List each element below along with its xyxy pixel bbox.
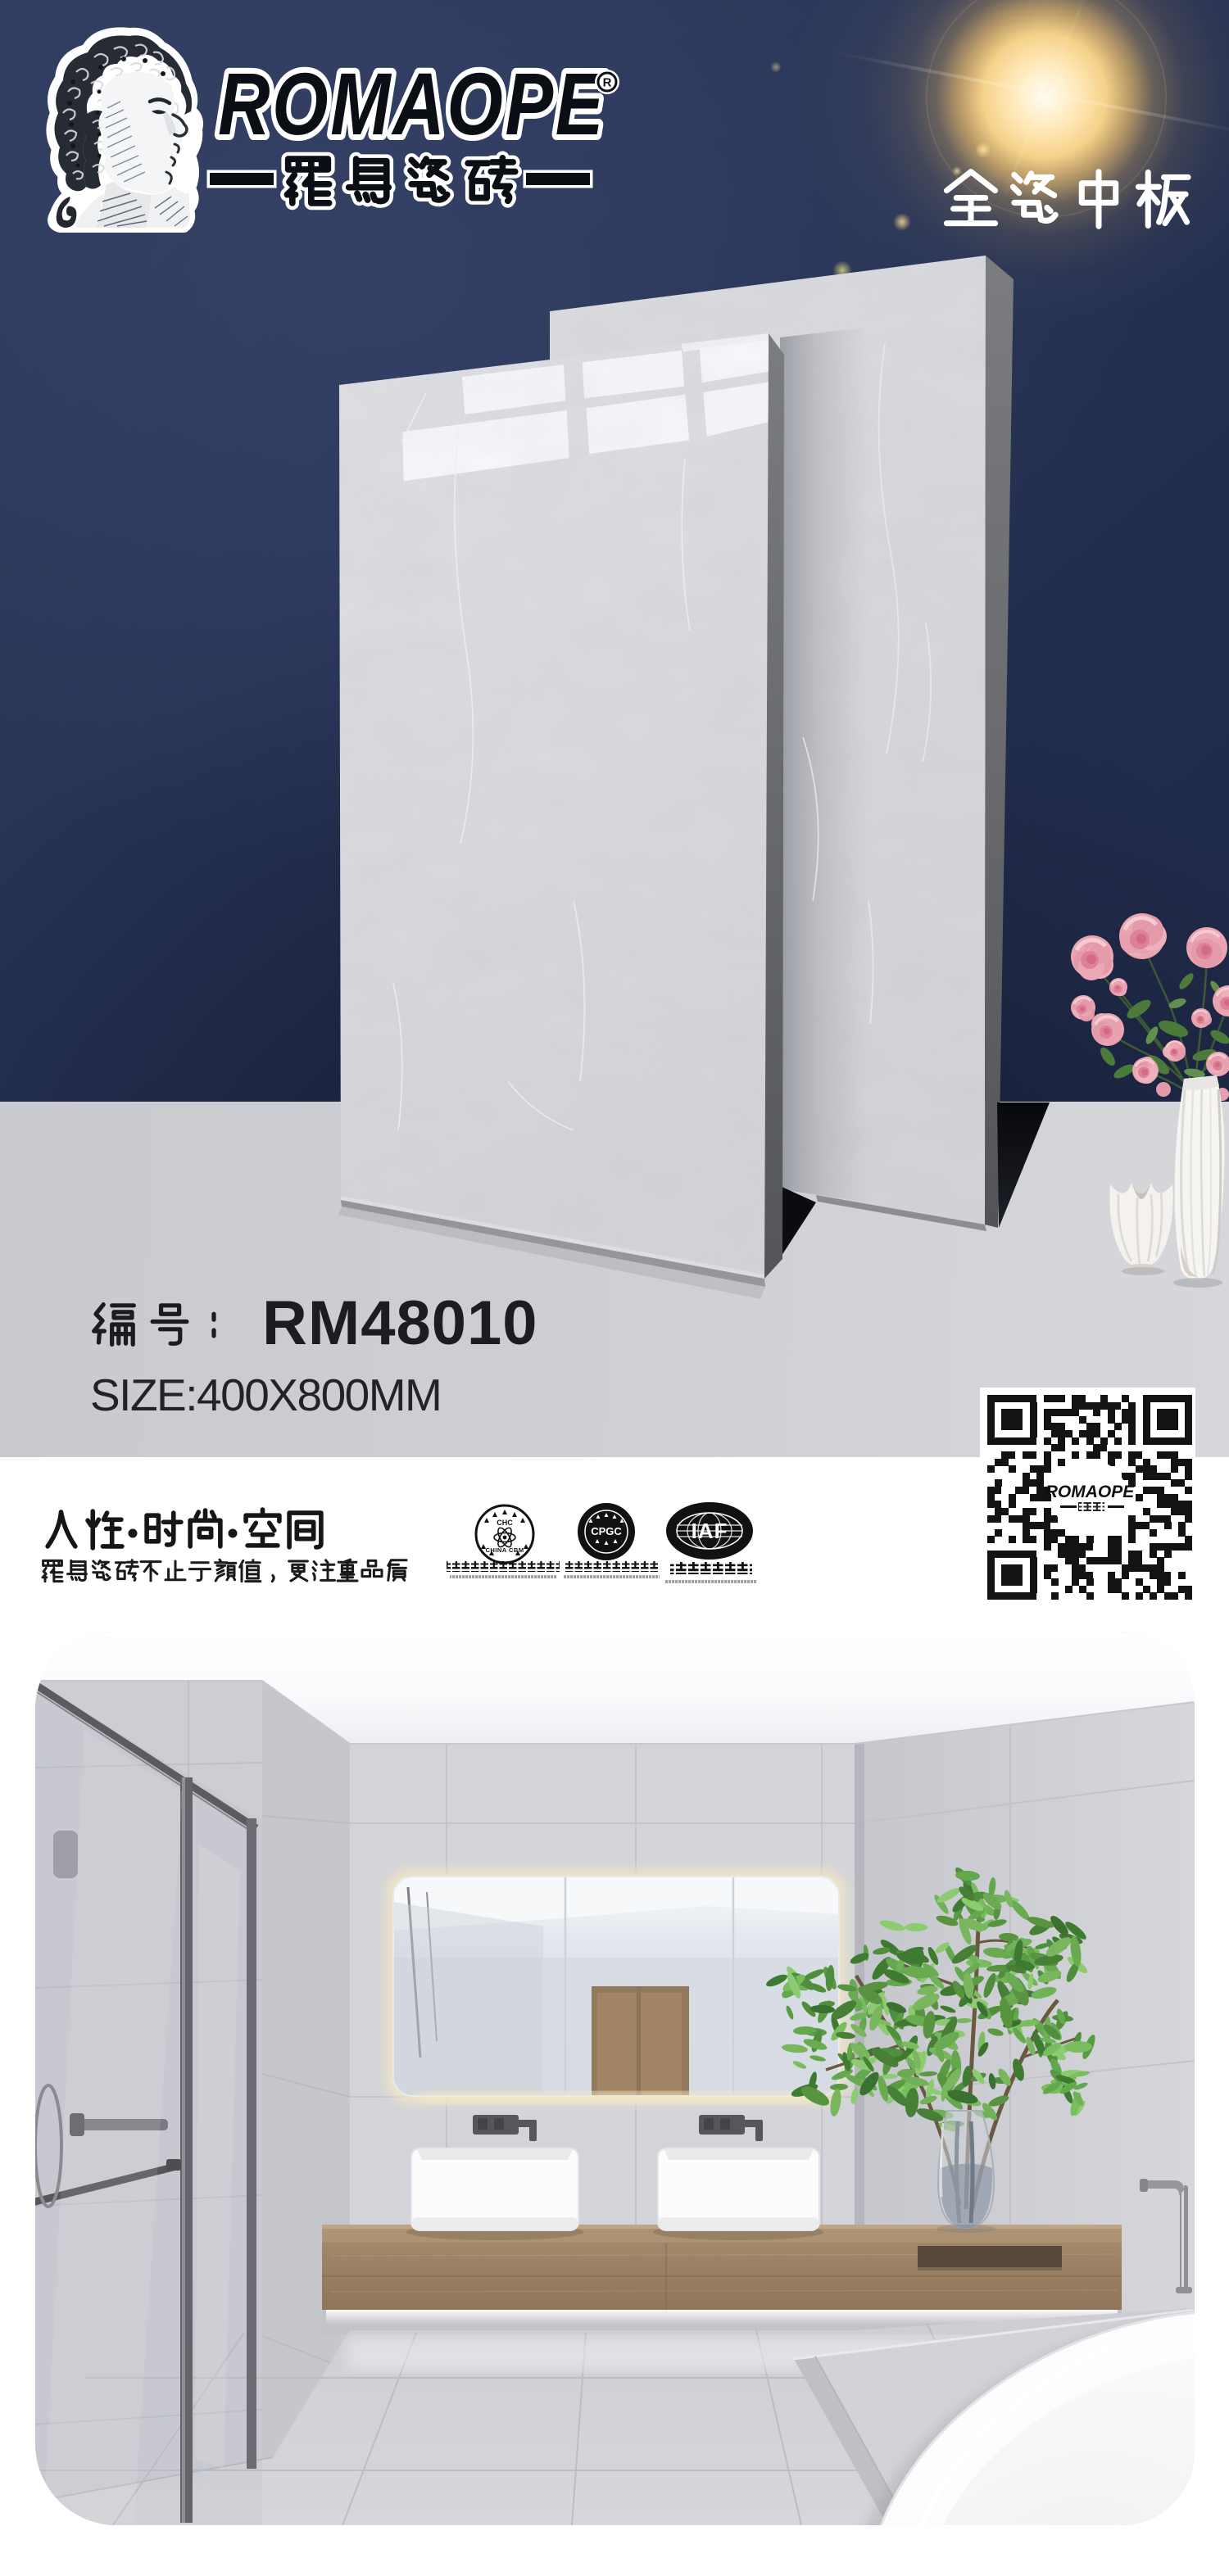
svg-text:CHC: CHC	[497, 1519, 513, 1527]
svg-text:IAF: IAF	[692, 1519, 728, 1543]
svg-text:ROMAOPE: ROMAOPE	[1045, 1483, 1136, 1501]
svg-text:ROMAOPE: ROMAOPE	[218, 54, 605, 153]
svg-text:CPGC: CPGC	[591, 1525, 622, 1537]
svg-text:CHINA CBM: CHINA CBM	[485, 1546, 524, 1554]
svg-text:RM48010: RM48010	[262, 1288, 538, 1358]
svg-text:SIZE:400X800MM: SIZE:400X800MM	[90, 1369, 441, 1420]
svg-text:R: R	[603, 76, 612, 90]
